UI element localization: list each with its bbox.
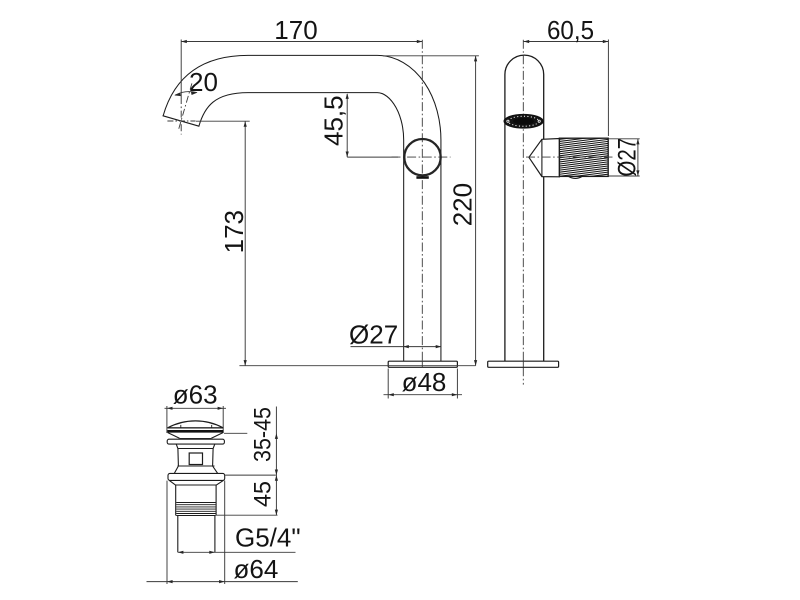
svg-text:ø63: ø63: [173, 380, 218, 410]
svg-text:Ø27: Ø27: [349, 320, 398, 350]
svg-text:ø48: ø48: [402, 367, 447, 397]
svg-text:45,5: 45,5: [319, 95, 349, 146]
svg-text:20: 20: [189, 67, 218, 97]
svg-text:Ø27: Ø27: [614, 138, 642, 177]
svg-text:60,5: 60,5: [547, 15, 594, 45]
svg-text:ø64: ø64: [234, 554, 279, 584]
svg-text:173: 173: [219, 210, 249, 253]
svg-text:45: 45: [249, 481, 276, 507]
svg-text:220: 220: [447, 183, 477, 226]
svg-text:G5/4": G5/4": [235, 523, 301, 553]
svg-text:35-45: 35-45: [249, 407, 276, 462]
svg-text:170: 170: [274, 15, 317, 45]
